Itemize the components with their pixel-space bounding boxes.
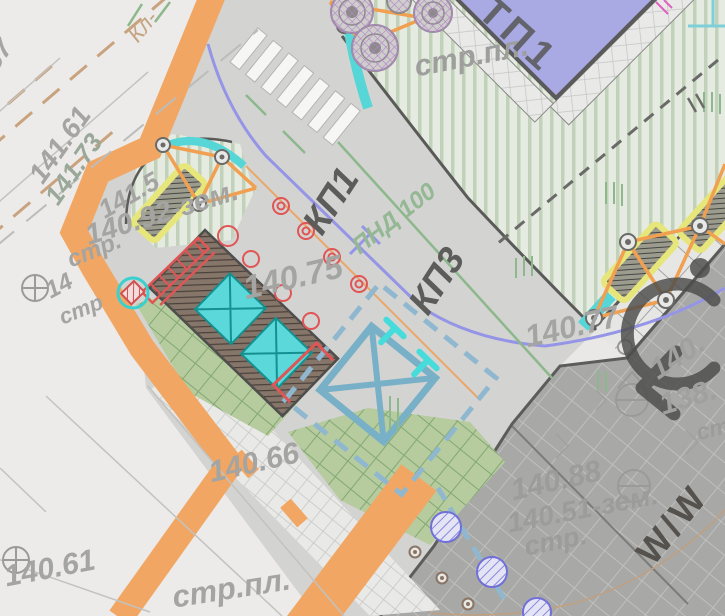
survey-nail-icon — [192, 197, 206, 211]
tree-icon — [352, 25, 398, 71]
tree-icon — [414, 0, 452, 32]
plan-canvas[interactable]: 141.57 Кл- 141.61 141.73 141.5 140.92-зе… — [0, 0, 725, 616]
survey-nail-icon — [463, 599, 474, 610]
site-plan-svg — [0, 0, 725, 616]
survey-nail-icon — [437, 573, 448, 584]
planned-tree-icon — [523, 598, 551, 616]
survey-nail-icon — [215, 150, 229, 164]
survey-nail-icon — [620, 234, 636, 250]
survey-nail-icon — [692, 218, 708, 234]
survey-nail-icon — [658, 292, 674, 308]
survey-nail-icon — [586, 310, 602, 326]
entrance-marker — [118, 278, 148, 308]
benchmark-icon — [22, 275, 48, 301]
survey-nail-icon — [156, 138, 170, 152]
planned-tree-icon — [431, 512, 461, 542]
benchmark-icon — [3, 547, 29, 573]
survey-nail-icon — [410, 547, 421, 558]
planned-tree-icon — [477, 557, 507, 587]
